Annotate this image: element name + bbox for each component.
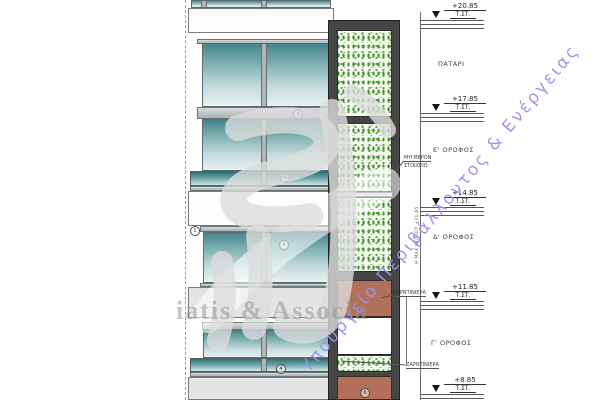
level-marker: +20.85 Τ.ΣΤ. xyxy=(430,2,488,32)
slab-band xyxy=(188,377,335,400)
boundary-dashed-line xyxy=(185,0,186,400)
keynote-bubble: 6 xyxy=(360,388,370,398)
glazing-panel xyxy=(202,119,331,171)
slab-lines xyxy=(420,394,484,400)
keynote-bubble: 4 xyxy=(279,240,289,250)
slab-band xyxy=(188,191,335,226)
floor-label-d-orofos: Δ' ΟΡΟΦΟΣ xyxy=(433,233,474,241)
level-triangle-icon xyxy=(432,292,440,299)
mullion xyxy=(261,172,267,185)
note-non-heated-1: ΜΗ ΘΕΡΟΝ xyxy=(404,155,431,162)
parapet-band xyxy=(188,8,334,33)
mullion xyxy=(261,331,267,357)
level-value: +11.85 xyxy=(444,283,486,292)
note-planter-lower: ΖΑΡΝΤΙΝΙΕΡΑ xyxy=(406,362,439,369)
floor-label-patari: ΠΑΤΑΡΙ xyxy=(438,60,465,68)
level-datum: Τ.ΣΤ. xyxy=(450,385,476,393)
level-triangle-icon xyxy=(432,385,440,392)
mullion xyxy=(261,120,267,170)
mullion xyxy=(201,1,207,7)
living-wall-panel xyxy=(337,123,392,192)
mullion xyxy=(261,359,267,371)
level-value: +17.85 xyxy=(444,95,486,104)
transom-band xyxy=(197,107,335,119)
level-datum: Τ.ΣΤ. xyxy=(450,104,476,112)
glazing-panel xyxy=(203,232,331,283)
keynote-bubble: 1 xyxy=(190,226,200,236)
keynote-bubble: 3 xyxy=(293,109,303,119)
mullion xyxy=(261,233,267,282)
level-marker: +8.85 Τ.ΣΤ. xyxy=(430,376,488,400)
note-planter-upper: ΖΑΡΝΤΙΝΙΕΡΑ xyxy=(393,290,426,297)
slab-lines xyxy=(420,20,484,31)
planter-leader-line xyxy=(406,296,407,364)
mullion xyxy=(261,1,267,7)
level-marker: +11.85 Τ.ΣΤ. xyxy=(430,283,488,313)
level-value: +8.85 xyxy=(444,376,486,385)
level-datum: Τ.ΣΤ. xyxy=(450,11,476,19)
floor-label-e-orofos: Ε' ΟΡΟΦΟΣ xyxy=(433,146,474,154)
keynote-bubble: 4 xyxy=(276,364,286,374)
glazing-panel xyxy=(202,43,331,107)
glass-railing xyxy=(190,171,335,186)
level-triangle-icon xyxy=(432,104,440,111)
elevation-drawing-canvas: 3 4 1 4 4 6 +20.85 Τ.ΣΤ. +17.85 Τ.ΣΤ. +1… xyxy=(0,0,600,400)
level-triangle-icon xyxy=(432,11,440,18)
floor-label-c-orofos: Γ' ΟΡΟΦΟΣ xyxy=(431,339,471,347)
keynote-bubble: 4 xyxy=(280,173,290,183)
living-wall-panel xyxy=(337,30,392,117)
level-reference-line xyxy=(420,12,421,400)
level-value: +20.85 xyxy=(444,2,486,11)
patari-top-glazing xyxy=(191,0,331,8)
level-marker: +17.85 Τ.ΣΤ. xyxy=(430,95,488,125)
mullion xyxy=(261,44,267,106)
note-non-heated-2: ΣΤΟΙΧΕΙΟ xyxy=(404,163,428,169)
slab-lines xyxy=(420,113,484,124)
slab-lines xyxy=(420,301,484,312)
level-datum: Τ.ΣΤ. xyxy=(450,292,476,300)
planting-strip xyxy=(337,355,392,372)
